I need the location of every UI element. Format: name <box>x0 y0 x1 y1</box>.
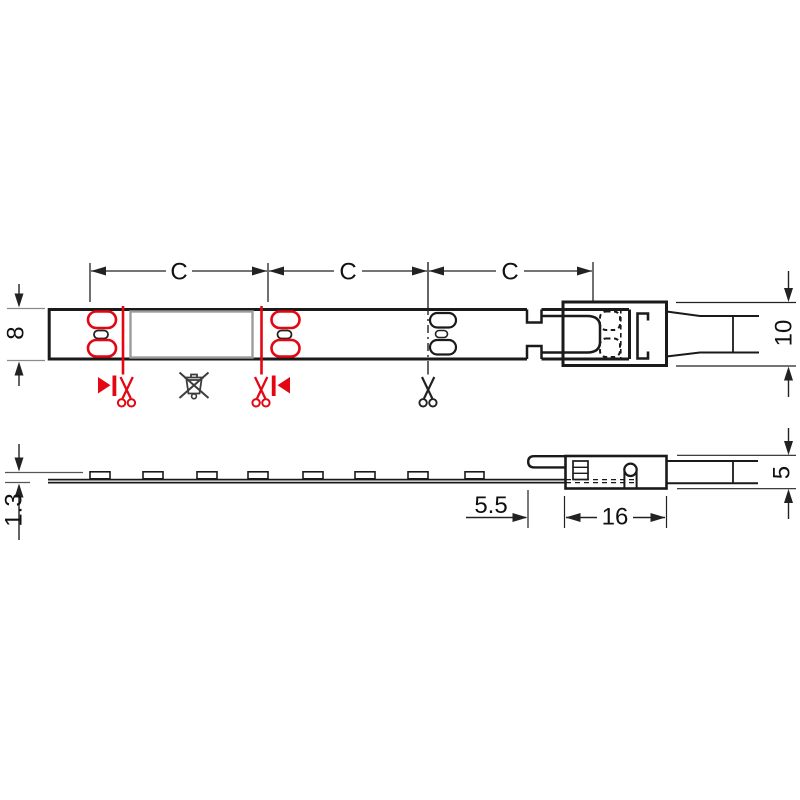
arrowhead <box>651 513 666 522</box>
cut-stop-bar <box>113 376 117 397</box>
arrowhead <box>784 441 793 455</box>
bin-wheel <box>192 394 197 399</box>
dimension-label-c3: C <box>501 259 518 286</box>
led-chip <box>355 472 375 479</box>
center-pad <box>278 331 292 339</box>
led-chip <box>90 472 110 479</box>
clip-tongue <box>542 316 601 353</box>
cut-symbols-right <box>252 376 290 407</box>
dimension-label-c2: C <box>339 259 356 286</box>
arrowhead <box>15 458 24 472</box>
arrowhead <box>269 267 284 276</box>
cut-symbols-left <box>98 376 135 407</box>
technical-drawing-canvas: C C C 8 <box>0 0 800 800</box>
led-chip <box>408 472 428 479</box>
arrowhead <box>566 513 581 522</box>
center-pad <box>94 331 108 339</box>
arrowhead <box>91 267 106 276</box>
led-module-outline <box>131 312 253 358</box>
center-pad <box>436 331 448 338</box>
clip-notch-bottom <box>527 346 542 359</box>
solder-pad <box>430 313 456 328</box>
dimension-pitch-c: C C C <box>90 259 593 303</box>
clip-notch-top <box>527 310 542 323</box>
contact-bracket <box>638 314 649 359</box>
lead-cable <box>667 312 760 357</box>
solder-pad <box>88 312 116 329</box>
arrowhead <box>784 288 793 302</box>
arrowhead <box>15 294 24 308</box>
dimension-connector-height-5: 5 <box>677 428 796 519</box>
hidden-pad-dashed <box>600 312 620 331</box>
arrowhead <box>15 362 24 376</box>
scissors-black-icon <box>419 377 436 406</box>
solder-pad <box>430 340 456 355</box>
dimension-label-8: 8 <box>3 326 30 339</box>
dimension-connector-length-16: 16 <box>565 496 667 531</box>
arrowhead <box>577 267 592 276</box>
arrowhead <box>252 267 267 276</box>
led-chips <box>90 472 484 479</box>
dimension-label-5-5: 5.5 <box>474 492 507 519</box>
arrowhead <box>429 267 444 276</box>
hidden-tape-dashed <box>566 480 638 483</box>
arrowhead <box>784 489 793 503</box>
arrowhead <box>412 267 427 276</box>
led-chip <box>248 472 268 479</box>
led-strip-drawing: C C C 8 <box>0 0 800 800</box>
solder-pad <box>272 340 300 357</box>
solder-pad <box>272 312 300 329</box>
led-chip <box>465 472 484 479</box>
dimension-label-1-3: 1.3 <box>1 493 28 526</box>
cut-direction-right-icon <box>98 377 111 394</box>
led-chip <box>143 472 163 479</box>
clip-lever <box>528 456 566 467</box>
strip-side-tape <box>48 480 565 483</box>
contact-block <box>573 461 588 480</box>
scissors-red-left-icon <box>118 377 135 406</box>
dimension-label-10: 10 <box>771 320 798 347</box>
solder-pads-middle <box>272 312 300 357</box>
cut-direction-left-icon <box>278 377 291 394</box>
hidden-pad-dashed <box>600 339 620 358</box>
dimension-strip-width-8: 8 <box>3 284 46 386</box>
scissors-red-right-icon <box>252 377 269 406</box>
dimension-label-c1: C <box>170 259 187 286</box>
connector-top-view <box>527 302 759 366</box>
lead-cable <box>667 461 759 483</box>
arrowhead <box>513 513 528 522</box>
solder-pads-right <box>430 313 456 355</box>
dimension-connector-width-10: 10 <box>676 271 798 397</box>
arrowhead <box>784 367 793 381</box>
dimension-thickness-1-3: 1.3 <box>1 444 84 540</box>
led-chip <box>303 472 323 479</box>
locking-pin <box>624 464 636 476</box>
dimension-label-5: 5 <box>769 466 796 479</box>
solder-pads-left <box>88 312 116 357</box>
bin-body <box>187 380 202 394</box>
connector-side-view <box>528 456 758 489</box>
led-chip <box>197 472 217 479</box>
cut-stop-bar <box>272 376 276 397</box>
dimension-label-16: 16 <box>602 504 629 531</box>
side-view: 1.3 <box>1 428 797 540</box>
solder-pad <box>88 340 116 357</box>
top-view: C C C 8 <box>3 259 798 407</box>
dimension-end-offset-5-5: 5.5 <box>466 490 528 528</box>
weee-crossed-bin-icon <box>180 373 209 399</box>
